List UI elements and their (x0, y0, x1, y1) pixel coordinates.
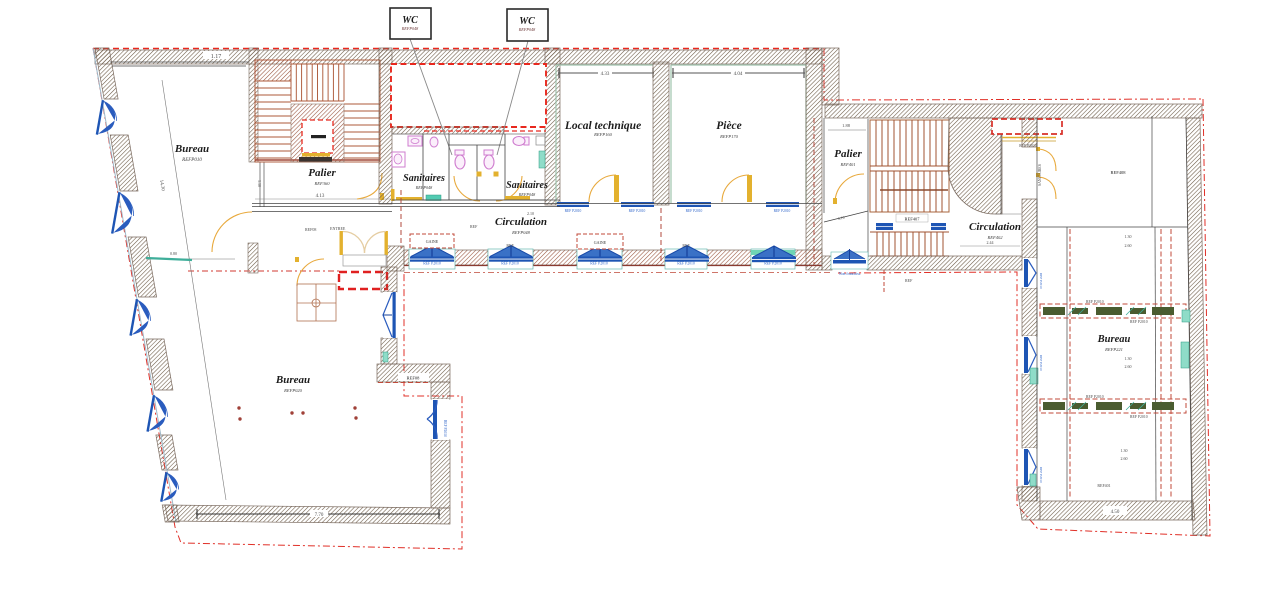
svg-text:REF: REF (682, 243, 690, 248)
svg-text:Circulation: Circulation (969, 221, 1021, 233)
svg-text:REFP010: REFP010 (181, 158, 202, 163)
svg-text:Non franchiss.: Non franchiss. (839, 272, 861, 276)
svg-text:REF P2010: REF P2010 (774, 209, 791, 213)
svg-text:REFP160: REFP160 (593, 132, 612, 137)
svg-text:Bureau: Bureau (174, 143, 209, 155)
svg-text:Bureau: Bureau (275, 374, 310, 386)
svg-text:REF P2010: REF P2010 (764, 262, 782, 266)
svg-text:2.44: 2.44 (987, 240, 994, 245)
svg-text:REF P2010: REF P2010 (1039, 467, 1043, 483)
svg-text:GAINE: GAINE (426, 239, 439, 244)
svg-text:2.60: 2.60 (1125, 364, 1132, 369)
svg-text:REF P2010: REF P2010 (677, 262, 695, 266)
svg-text:2.10: 2.10 (527, 211, 534, 216)
svg-text:REF P2010: REF P2010 (443, 420, 447, 437)
svg-text:4.50: 4.50 (1111, 510, 1120, 515)
svg-text:REF407: REF407 (904, 217, 920, 222)
svg-text:Circulation: Circulation (495, 216, 547, 228)
svg-text:GAINE: GAINE (594, 240, 607, 245)
svg-text:1.88: 1.88 (842, 123, 851, 128)
svg-text:REF P2010: REF P2010 (629, 209, 646, 213)
svg-text:REF P2010: REF P2010 (565, 209, 582, 213)
svg-text:0.80: 0.80 (170, 251, 177, 256)
svg-text:2.60: 2.60 (1125, 243, 1132, 248)
svg-text:REFP170: REFP170 (719, 134, 738, 139)
svg-text:1.10: 1.10 (257, 180, 262, 187)
svg-text:REF P2010: REF P2010 (1039, 355, 1043, 371)
svg-text:ENTREE: ENTREE (330, 226, 346, 231)
svg-text:REFP048: REFP048 (511, 230, 530, 235)
svg-text:REF: REF (470, 224, 478, 229)
svg-text:Palier: Palier (308, 167, 336, 179)
svg-text:REF: REF (905, 278, 913, 283)
svg-text:REF P2010: REF P2010 (1039, 273, 1043, 289)
svg-text:REF P2010: REF P2010 (501, 262, 519, 266)
svg-text:Local technique: Local technique (564, 120, 641, 132)
svg-text:REF P2010: REF P2010 (1086, 300, 1104, 304)
svg-text:4.04: 4.04 (734, 72, 743, 77)
svg-text:REF401: REF401 (840, 162, 856, 167)
svg-text:SANITAIRES: SANITAIRES (1038, 164, 1042, 186)
svg-text:Bureau: Bureau (1097, 334, 1131, 345)
svg-text:WC: WC (402, 15, 418, 26)
svg-text:REF P2010: REF P2010 (1130, 415, 1148, 419)
svg-text:WC: WC (519, 16, 535, 27)
svg-text:REF408: REF408 (1110, 170, 1126, 175)
svg-text:1.30: 1.30 (1125, 234, 1132, 239)
svg-text:REF P2010: REF P2010 (1130, 320, 1148, 324)
svg-text:Sanitaires: Sanitaires (403, 173, 445, 184)
svg-text:REFP221: REFP221 (1104, 347, 1123, 352)
svg-text:REF P2010: REF P2010 (1086, 395, 1104, 399)
svg-text:Palier: Palier (834, 148, 862, 160)
svg-text:REF360: REF360 (314, 181, 331, 186)
svg-text:REFP020: REFP020 (283, 388, 302, 393)
svg-text:1.17: 1.17 (211, 54, 222, 60)
svg-text:Pièce: Pièce (716, 120, 742, 132)
svg-text:REFP048: REFP048 (415, 185, 433, 190)
svg-text:REF: REF (506, 243, 514, 248)
svg-text:2.60: 2.60 (1121, 456, 1128, 461)
svg-text:1.30: 1.30 (1125, 356, 1132, 361)
svg-text:REFP048: REFP048 (518, 27, 536, 32)
svg-text:4.33: 4.33 (601, 72, 610, 77)
svg-text:REF P2010: REF P2010 (423, 262, 441, 266)
svg-text:REF08: REF08 (407, 376, 421, 381)
svg-text:REF P2010: REF P2010 (686, 209, 703, 213)
svg-text:REF08: REF08 (305, 227, 316, 232)
svg-text:REF P2010: REF P2010 (590, 262, 608, 266)
svg-text:REFP048: REFP048 (401, 26, 419, 31)
svg-text:Sanitaires: Sanitaires (506, 180, 548, 191)
svg-text:REF401: REF401 (1097, 483, 1110, 488)
svg-text:1.30: 1.30 (1121, 448, 1128, 453)
svg-text:4.13: 4.13 (316, 194, 325, 199)
svg-text:7.70: 7.70 (315, 513, 324, 518)
